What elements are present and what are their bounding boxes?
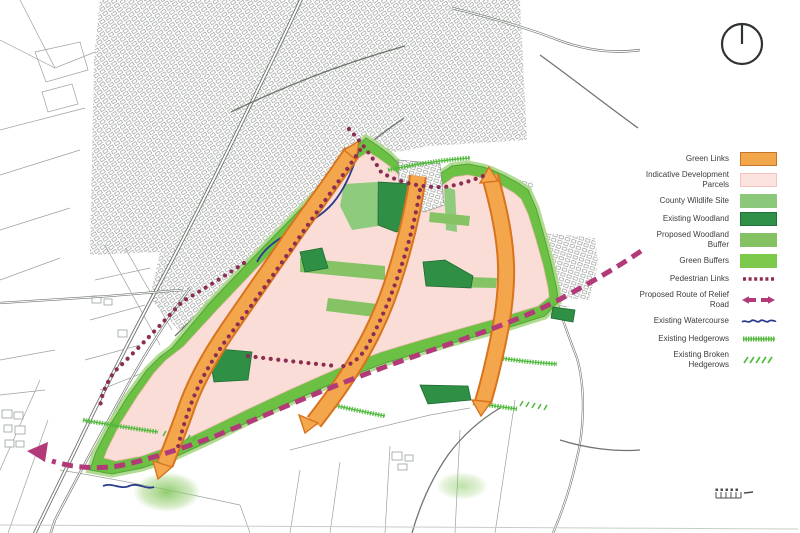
north-compass-icon <box>722 24 762 64</box>
broken-hedgerows-symbol <box>740 354 777 366</box>
relief-road-arrowhead <box>27 442 48 462</box>
legend-label: Indicative Development Parcels <box>634 170 729 190</box>
development-parcels-swatch <box>740 173 777 187</box>
legend-item-pedestrian-links: Pedestrian Links <box>634 272 780 286</box>
legend-item-woodland-buffer: Proposed Woodland Buffer <box>634 230 780 250</box>
green-buffers-swatch <box>740 254 777 268</box>
legend-label: Proposed Woodland Buffer <box>634 230 729 250</box>
pedestrian-links-symbol <box>740 274 777 284</box>
watercourse-symbol <box>740 316 777 326</box>
legend-label: County Wildlife Site <box>634 196 729 206</box>
legend-label: Existing Broken Hedgerows <box>634 350 729 370</box>
legend-item-existing-woodland: Existing Woodland <box>634 212 780 226</box>
legend-item-green-buffers: Green Buffers <box>634 254 780 268</box>
legend-label: Pedestrian Links <box>634 274 729 284</box>
legend-label: Existing Woodland <box>634 214 729 224</box>
scale-bar <box>716 489 753 498</box>
existing-woodland-swatch <box>740 212 777 226</box>
legend-item-broken-hedgerows: Existing Broken Hedgerows <box>634 350 780 370</box>
soft-green-planting <box>133 472 488 512</box>
legend-label: Existing Watercourse <box>634 316 729 326</box>
legend-item-county-wildlife-site: County Wildlife Site <box>634 194 780 208</box>
legend-item-watercourse: Existing Watercourse <box>634 314 780 328</box>
legend-label: Green Links <box>634 154 729 164</box>
legend-item-existing-hedgerows: Existing Hedgerows <box>634 332 780 346</box>
legend-item-development-parcels: Indicative Development Parcels <box>634 170 780 190</box>
masterplan-page: Green Links Indicative Development Parce… <box>0 0 800 533</box>
legend-label: Existing Hedgerows <box>634 334 729 344</box>
relief-road-symbol <box>740 293 777 307</box>
legend-label: Green Buffers <box>634 256 729 266</box>
green-links-swatch <box>740 152 777 166</box>
green-link-arrowhead <box>472 400 491 416</box>
map-legend: Green Links Indicative Development Parce… <box>634 152 780 374</box>
woodland-buffer-swatch <box>740 233 777 247</box>
wildlife-site-swatch <box>740 194 777 208</box>
legend-item-relief-road: Proposed Route of Relief Road <box>634 290 780 310</box>
legend-label: Proposed Route of Relief Road <box>634 290 729 310</box>
hedgerows-symbol <box>740 334 777 344</box>
page-frame-line <box>0 525 798 529</box>
legend-item-green-links: Green Links <box>634 152 780 166</box>
